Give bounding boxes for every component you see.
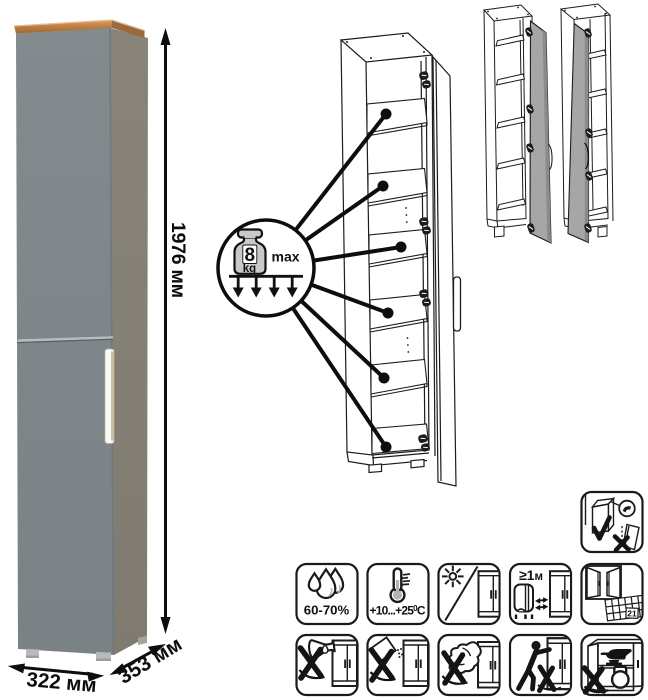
svg-text:+10...+250C: +10...+250C bbox=[370, 604, 426, 618]
svg-text:21: 21 bbox=[627, 608, 637, 618]
svg-text:322 мм: 322 мм bbox=[26, 668, 98, 697]
svg-text:1976 мм: 1976 мм bbox=[167, 222, 189, 298]
svg-text:60-70%: 60-70% bbox=[304, 603, 350, 618]
svg-text:kg: kg bbox=[243, 263, 256, 275]
svg-text:max: max bbox=[272, 249, 300, 265]
